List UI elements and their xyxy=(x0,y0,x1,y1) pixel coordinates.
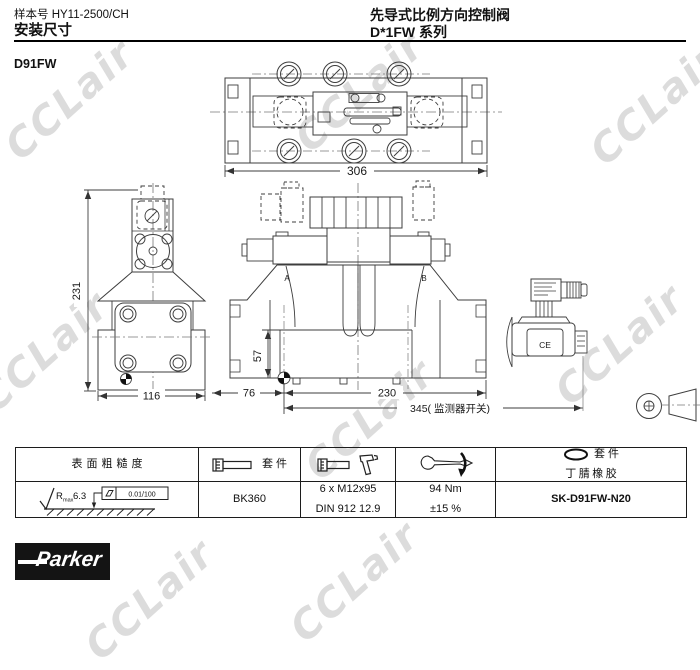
screw-icon xyxy=(212,457,256,473)
surface-roughness-header: 表面粗糙度 xyxy=(16,448,199,482)
torque-header xyxy=(396,448,496,482)
section-title: 安装尺寸 xyxy=(14,19,72,40)
watermark: CCLair xyxy=(281,513,428,652)
roughness-r: R xyxy=(56,491,63,502)
seal-kit-header: 套 件 丁腈橡胶 xyxy=(496,448,686,482)
dim-116: 116 xyxy=(98,389,205,403)
pilot-valve-top xyxy=(313,92,407,135)
dim-230-label: 230 xyxy=(378,388,396,400)
torque-wrench-icon xyxy=(418,452,474,478)
roughness-value: 6.3 xyxy=(73,491,86,502)
torque-value: 94 Nm ±15 % xyxy=(396,482,496,517)
bolt-spec-line2: DIN 912 12.9 xyxy=(316,503,381,517)
seal-material-label: 丁腈橡胶 xyxy=(563,468,620,482)
bolt-kit-value: BK360 xyxy=(199,482,301,517)
dim-57: 57 xyxy=(252,330,280,378)
oring-icon xyxy=(563,448,589,461)
parker-logo: Parker xyxy=(15,543,110,580)
caliper-icon xyxy=(357,453,379,477)
parker-logo-text: Parker xyxy=(34,548,103,572)
dim-76-label: 76 xyxy=(243,388,255,400)
screw-icon xyxy=(317,457,351,473)
port-a-label: A xyxy=(284,274,290,283)
dim-345-label: 345( 监测器开关) xyxy=(410,402,490,415)
bolt-spec-header xyxy=(301,448,396,482)
seal-kit-value: SK-D91FW-N20 xyxy=(496,482,686,517)
seal-kit-label: 套 件 xyxy=(594,448,619,462)
front-view-drawing: A B 57 76 230 345( 监测 xyxy=(212,181,583,415)
bolt-kit-header: 套 件 xyxy=(199,448,301,482)
plug-detail-drawing xyxy=(637,389,700,421)
technical-drawing: 306 231 xyxy=(0,55,700,445)
port-b-label: B xyxy=(421,274,426,283)
dim-231-label: 231 xyxy=(71,282,83,300)
bolt-kit-label: 套 件 xyxy=(262,458,287,472)
roughness-symbol: R max 6.3 0.01/100 xyxy=(30,484,185,516)
dim-57-label: 57 xyxy=(252,350,264,362)
spec-table: 表面粗糙度 套 件 xyxy=(15,447,687,518)
datasheet-page: { "page": { "doc_number": "样本号 HY11-2500… xyxy=(0,0,700,626)
ce-mark-label: CE xyxy=(539,340,551,350)
dim-116-label: 116 xyxy=(143,391,161,403)
dim-306-label: 306 xyxy=(347,164,367,178)
dim-306: 306 xyxy=(225,164,487,178)
header-rule xyxy=(14,40,686,42)
top-view-drawing: 306 xyxy=(210,62,502,178)
surface-roughness-value: R max 6.3 0.01/100 xyxy=(16,482,199,517)
series-title: D*1FW 系列 xyxy=(370,22,447,42)
torque-line2: ±15 % xyxy=(430,503,461,517)
model-label: D91FW xyxy=(14,57,56,71)
flatness-tolerance: 0.01/100 xyxy=(128,491,155,498)
solenoid-detail-drawing: CE xyxy=(507,279,587,411)
bolt-spec-line1: 6 x M12x95 xyxy=(320,483,377,497)
end-view-drawing: 231 116 xyxy=(71,183,211,403)
torque-line1: 94 Nm xyxy=(429,483,461,497)
bolt-spec-value: 6 x M12x95 DIN 912 12.9 xyxy=(301,482,396,517)
dim-76-230-345: 76 230 345( 监测器开关) xyxy=(212,380,583,415)
